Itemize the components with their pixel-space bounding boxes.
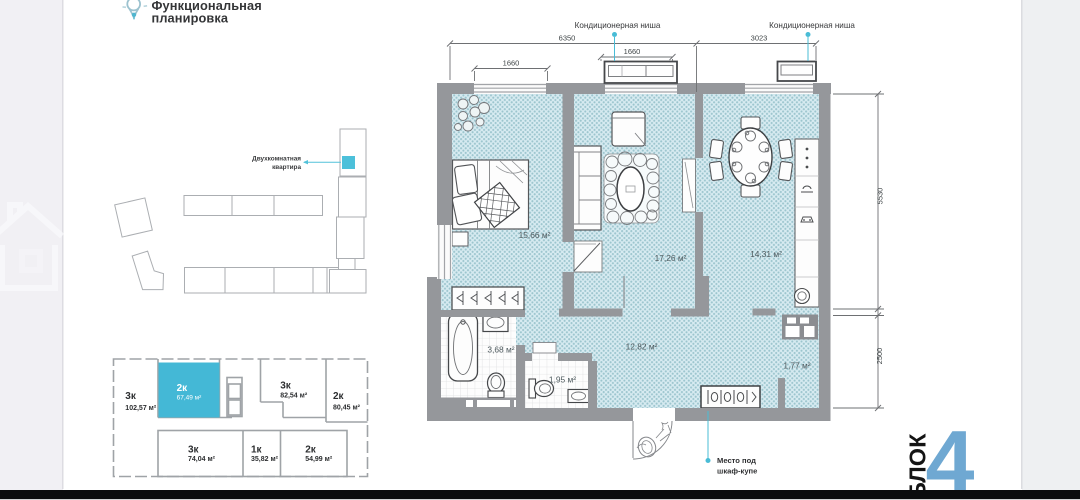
svg-text:1,77 м²: 1,77 м² xyxy=(783,361,810,371)
svg-text:80,45 м²: 80,45 м² xyxy=(333,405,361,412)
svg-text:14,31 м²: 14,31 м² xyxy=(750,249,782,259)
svg-text:3,68 м²: 3,68 м² xyxy=(487,345,514,355)
svg-text:Кондиционерная ниша: Кондиционерная ниша xyxy=(769,21,855,30)
svg-text:1660: 1660 xyxy=(624,47,641,56)
svg-text:планировка: планировка xyxy=(152,10,229,25)
svg-text:2к: 2к xyxy=(177,383,189,394)
svg-text:5530: 5530 xyxy=(876,188,885,205)
svg-text:квартира: квартира xyxy=(272,164,301,171)
svg-text:102,57 м²: 102,57 м² xyxy=(125,405,157,412)
svg-text:1,95 м²: 1,95 м² xyxy=(549,375,576,385)
svg-text:1660: 1660 xyxy=(503,59,520,68)
svg-text:2к: 2к xyxy=(305,445,317,456)
svg-text:3к: 3к xyxy=(280,381,292,392)
svg-text:67,49 м²: 67,49 м² xyxy=(177,395,203,402)
svg-text:3023: 3023 xyxy=(751,34,768,43)
svg-text:35,82 м²: 35,82 м² xyxy=(251,456,279,463)
svg-text:1к: 1к xyxy=(251,445,263,456)
svg-text:2к: 2к xyxy=(333,391,345,402)
svg-text:3к: 3к xyxy=(125,391,137,402)
svg-text:54,99 м²: 54,99 м² xyxy=(305,456,333,463)
svg-text:шкаф-купе: шкаф-купе xyxy=(717,467,757,476)
svg-text:12,82 м²: 12,82 м² xyxy=(626,342,658,352)
svg-text:17,26 м²: 17,26 м² xyxy=(655,253,687,263)
svg-text:Место под: Место под xyxy=(717,456,756,465)
svg-text:6350: 6350 xyxy=(559,34,576,43)
svg-text:Двухкомнатная: Двухкомнатная xyxy=(252,156,301,163)
svg-text:2500: 2500 xyxy=(875,348,884,365)
svg-text:74,04 м²: 74,04 м² xyxy=(188,456,216,463)
svg-text:Кондиционерная ниша: Кондиционерная ниша xyxy=(575,21,661,30)
svg-text:4: 4 xyxy=(926,412,975,500)
svg-text:3к: 3к xyxy=(188,445,200,456)
svg-text:15,66 м²: 15,66 м² xyxy=(519,230,551,240)
svg-text:82,54 м²: 82,54 м² xyxy=(280,393,308,400)
